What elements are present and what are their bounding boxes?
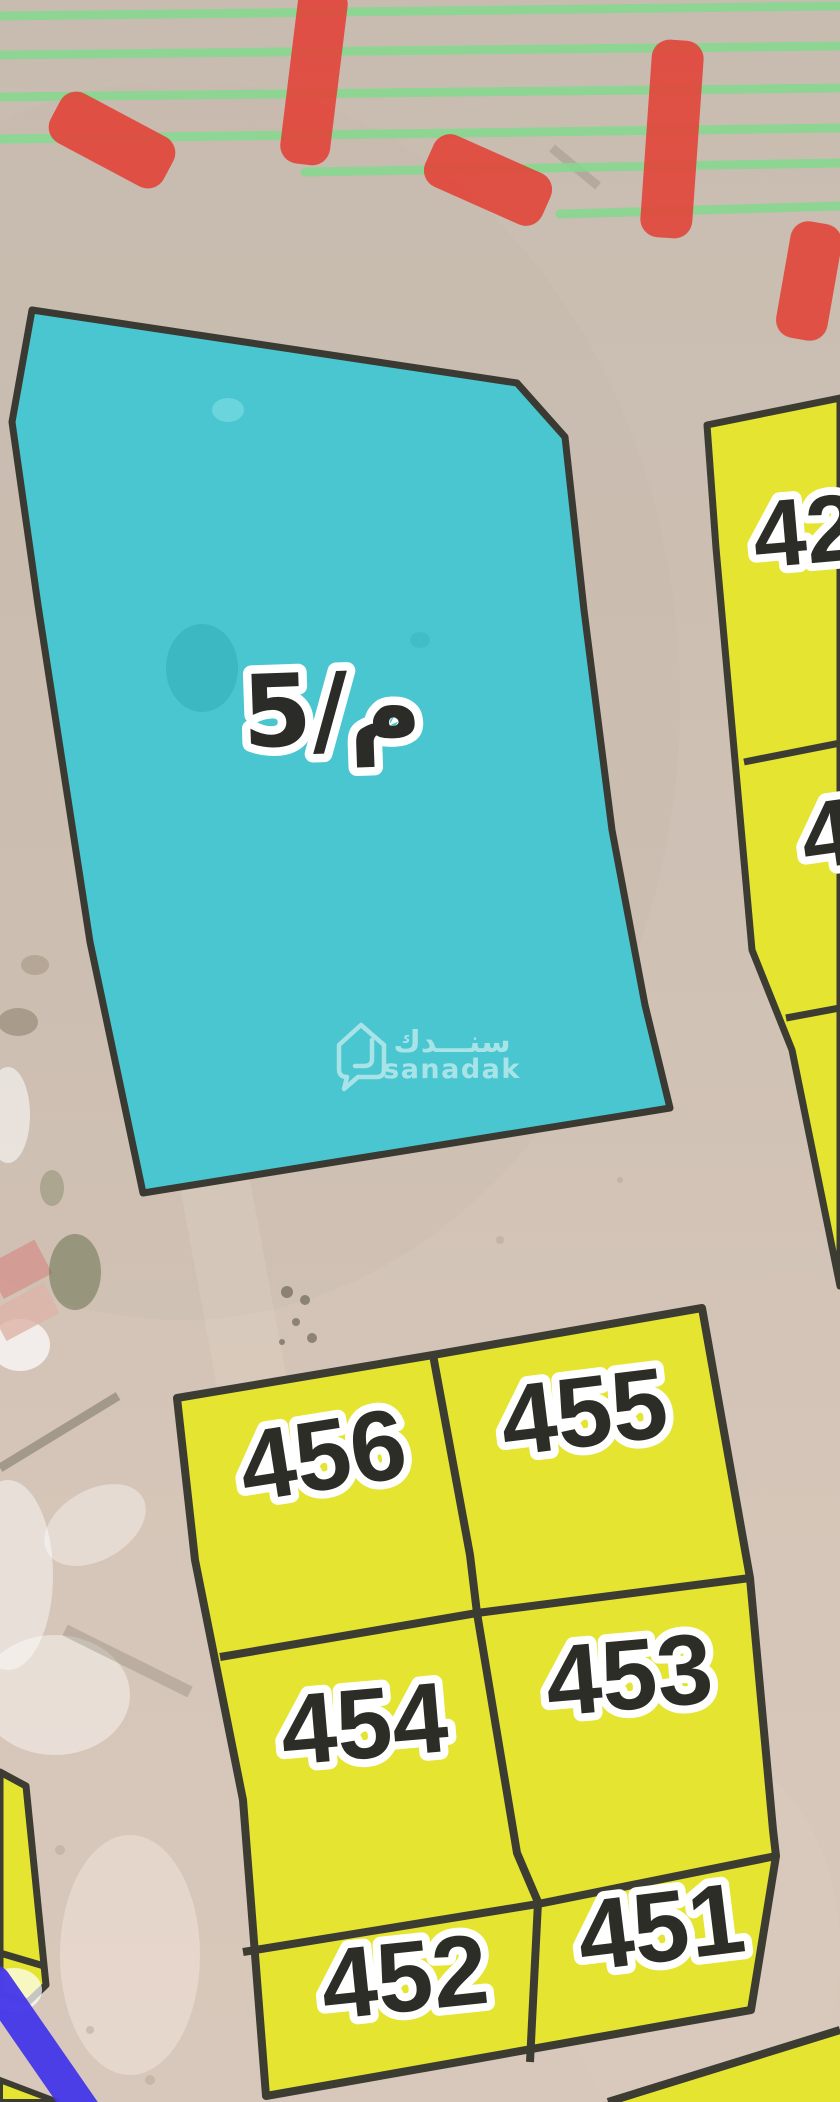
watermark-latin-text: sanadak bbox=[383, 1054, 521, 1085]
vegetation-patch bbox=[49, 1234, 101, 1310]
parcel-label-5m: 5/م bbox=[240, 648, 423, 771]
parcel-label-452: 452 bbox=[316, 1913, 494, 2042]
parcel-label-451: 451 bbox=[571, 1862, 750, 1994]
parcel-label-455: 455 bbox=[494, 1347, 673, 1479]
parcel-label-42: 42 bbox=[749, 474, 840, 589]
parcel-label-453: 453 bbox=[541, 1612, 717, 1738]
parcel-shade-blob bbox=[166, 624, 238, 712]
parcel-map: 5/م 42 4 456 455 454 453 452 451 bbox=[0, 0, 840, 2102]
satellite-map-canvas: 5/م 42 4 456 455 454 453 452 451 bbox=[0, 0, 840, 2102]
bottom-parcel-block: 456 455 454 453 452 451 bbox=[177, 1308, 776, 2096]
parcel-label-454: 454 bbox=[276, 1661, 452, 1787]
